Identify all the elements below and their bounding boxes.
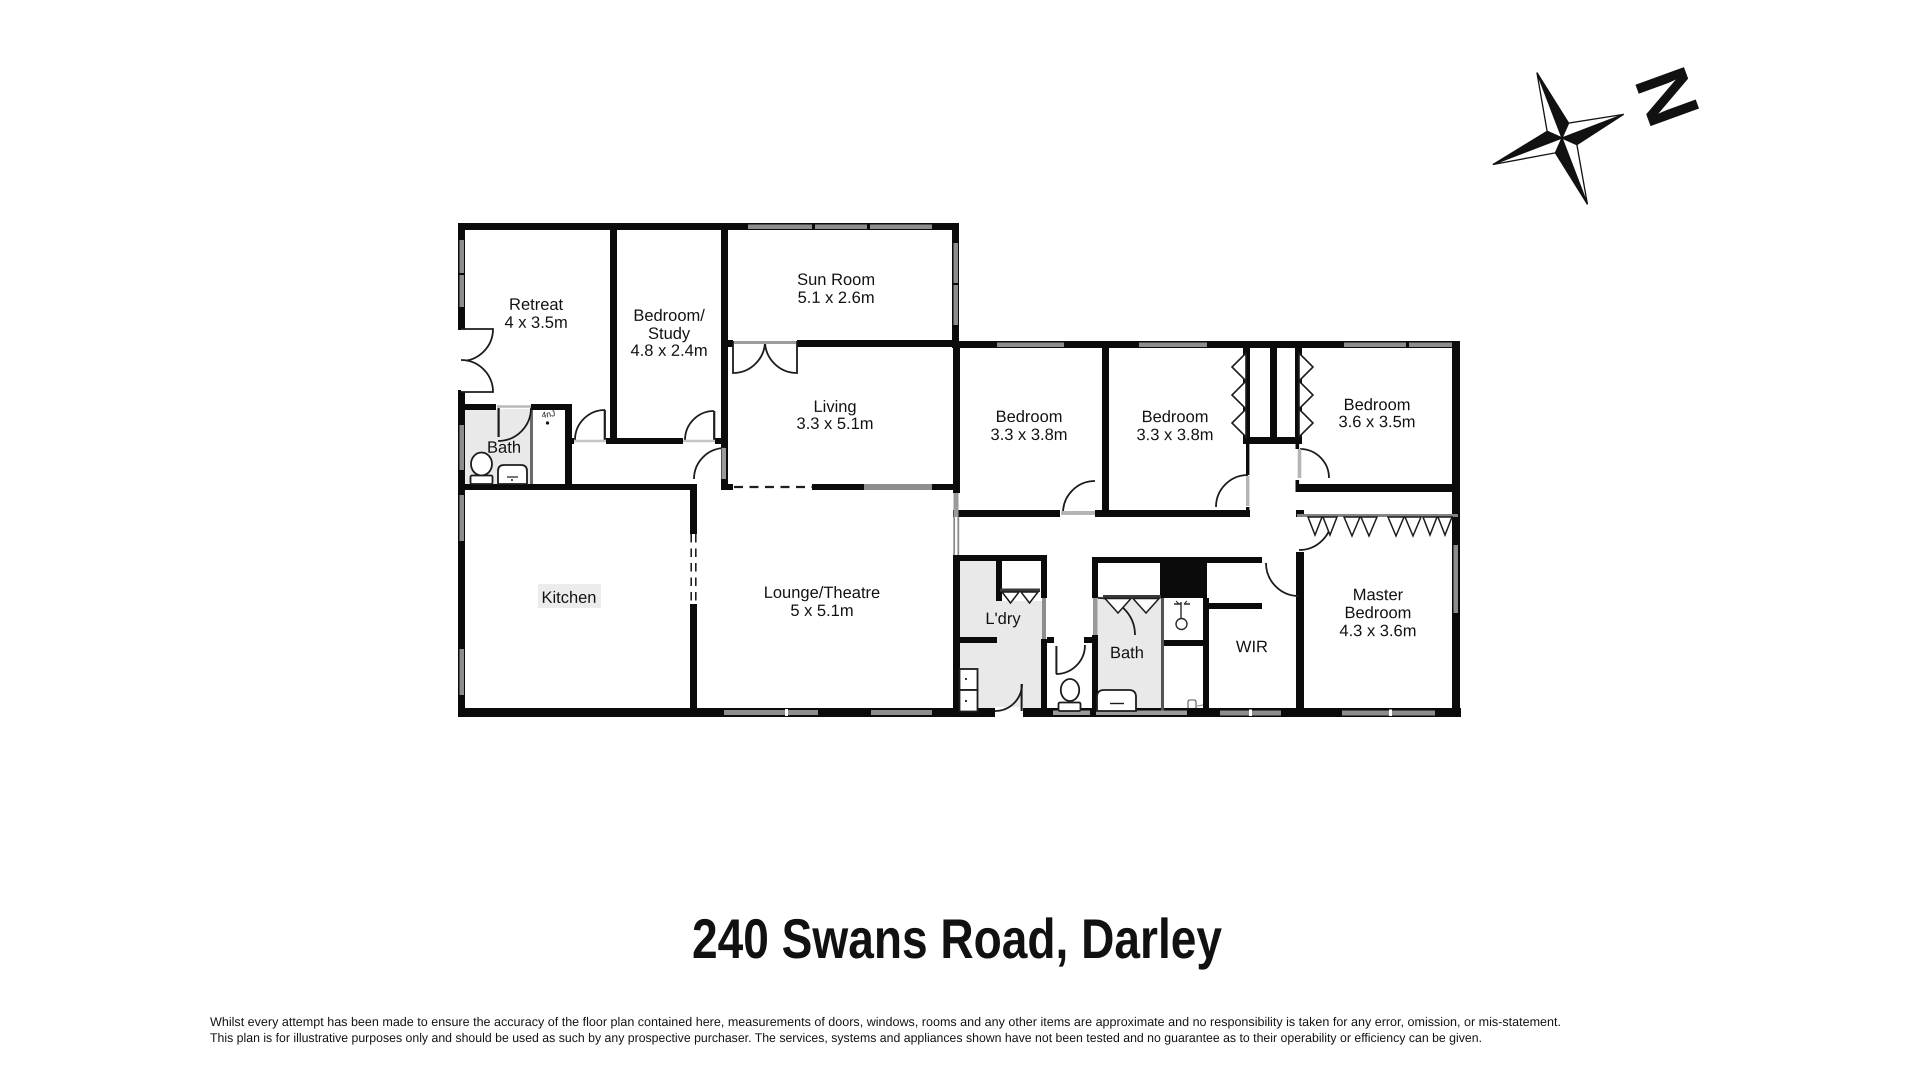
svg-text:WIR: WIR <box>1236 638 1268 656</box>
svg-text:4nJ: 4nJ <box>541 408 556 420</box>
svg-text:5 x 5.1m: 5 x 5.1m <box>790 602 853 620</box>
svg-text:Bedroom: Bedroom <box>1142 408 1209 426</box>
svg-text:Master: Master <box>1353 586 1404 604</box>
svg-text:This plan is for illustrative: This plan is for illustrative purposes o… <box>210 1031 1482 1045</box>
svg-text:Whilst every attempt has been: Whilst every attempt has been made to en… <box>210 1015 1561 1029</box>
svg-text:L'dry: L'dry <box>985 610 1021 628</box>
svg-text:Living: Living <box>813 398 856 416</box>
svg-text:3.3 x 3.8m: 3.3 x 3.8m <box>991 426 1068 444</box>
svg-text:4.8 x 2.4m: 4.8 x 2.4m <box>631 342 708 360</box>
svg-text:Bath: Bath <box>487 439 521 457</box>
svg-text:Bedroom: Bedroom <box>1344 604 1411 622</box>
svg-text:Lounge/Theatre: Lounge/Theatre <box>764 584 881 602</box>
svg-text:Bedroom: Bedroom <box>996 408 1063 426</box>
svg-text:3.3 x 3.8m: 3.3 x 3.8m <box>1137 426 1214 444</box>
svg-text:240 Swans Road, Darley: 240 Swans Road, Darley <box>692 907 1222 970</box>
svg-text:3.3 x 5.1m: 3.3 x 5.1m <box>797 415 874 433</box>
svg-text:Bedroom/: Bedroom/ <box>633 307 705 325</box>
svg-text:3.6 x 3.5m: 3.6 x 3.5m <box>1339 413 1416 431</box>
svg-text:Sun Room: Sun Room <box>797 271 875 289</box>
svg-text:Bedroom: Bedroom <box>1344 396 1411 414</box>
svg-text:Retreat: Retreat <box>509 296 564 314</box>
svg-text:5.1 x 2.6m: 5.1 x 2.6m <box>798 289 875 307</box>
svg-text:Kitchen: Kitchen <box>541 589 596 607</box>
svg-text:Study: Study <box>648 325 691 343</box>
svg-text:4.3 x 3.6m: 4.3 x 3.6m <box>1339 622 1416 640</box>
svg-text:Bath: Bath <box>1110 644 1144 662</box>
svg-text:4 x 3.5m: 4 x 3.5m <box>504 314 567 332</box>
